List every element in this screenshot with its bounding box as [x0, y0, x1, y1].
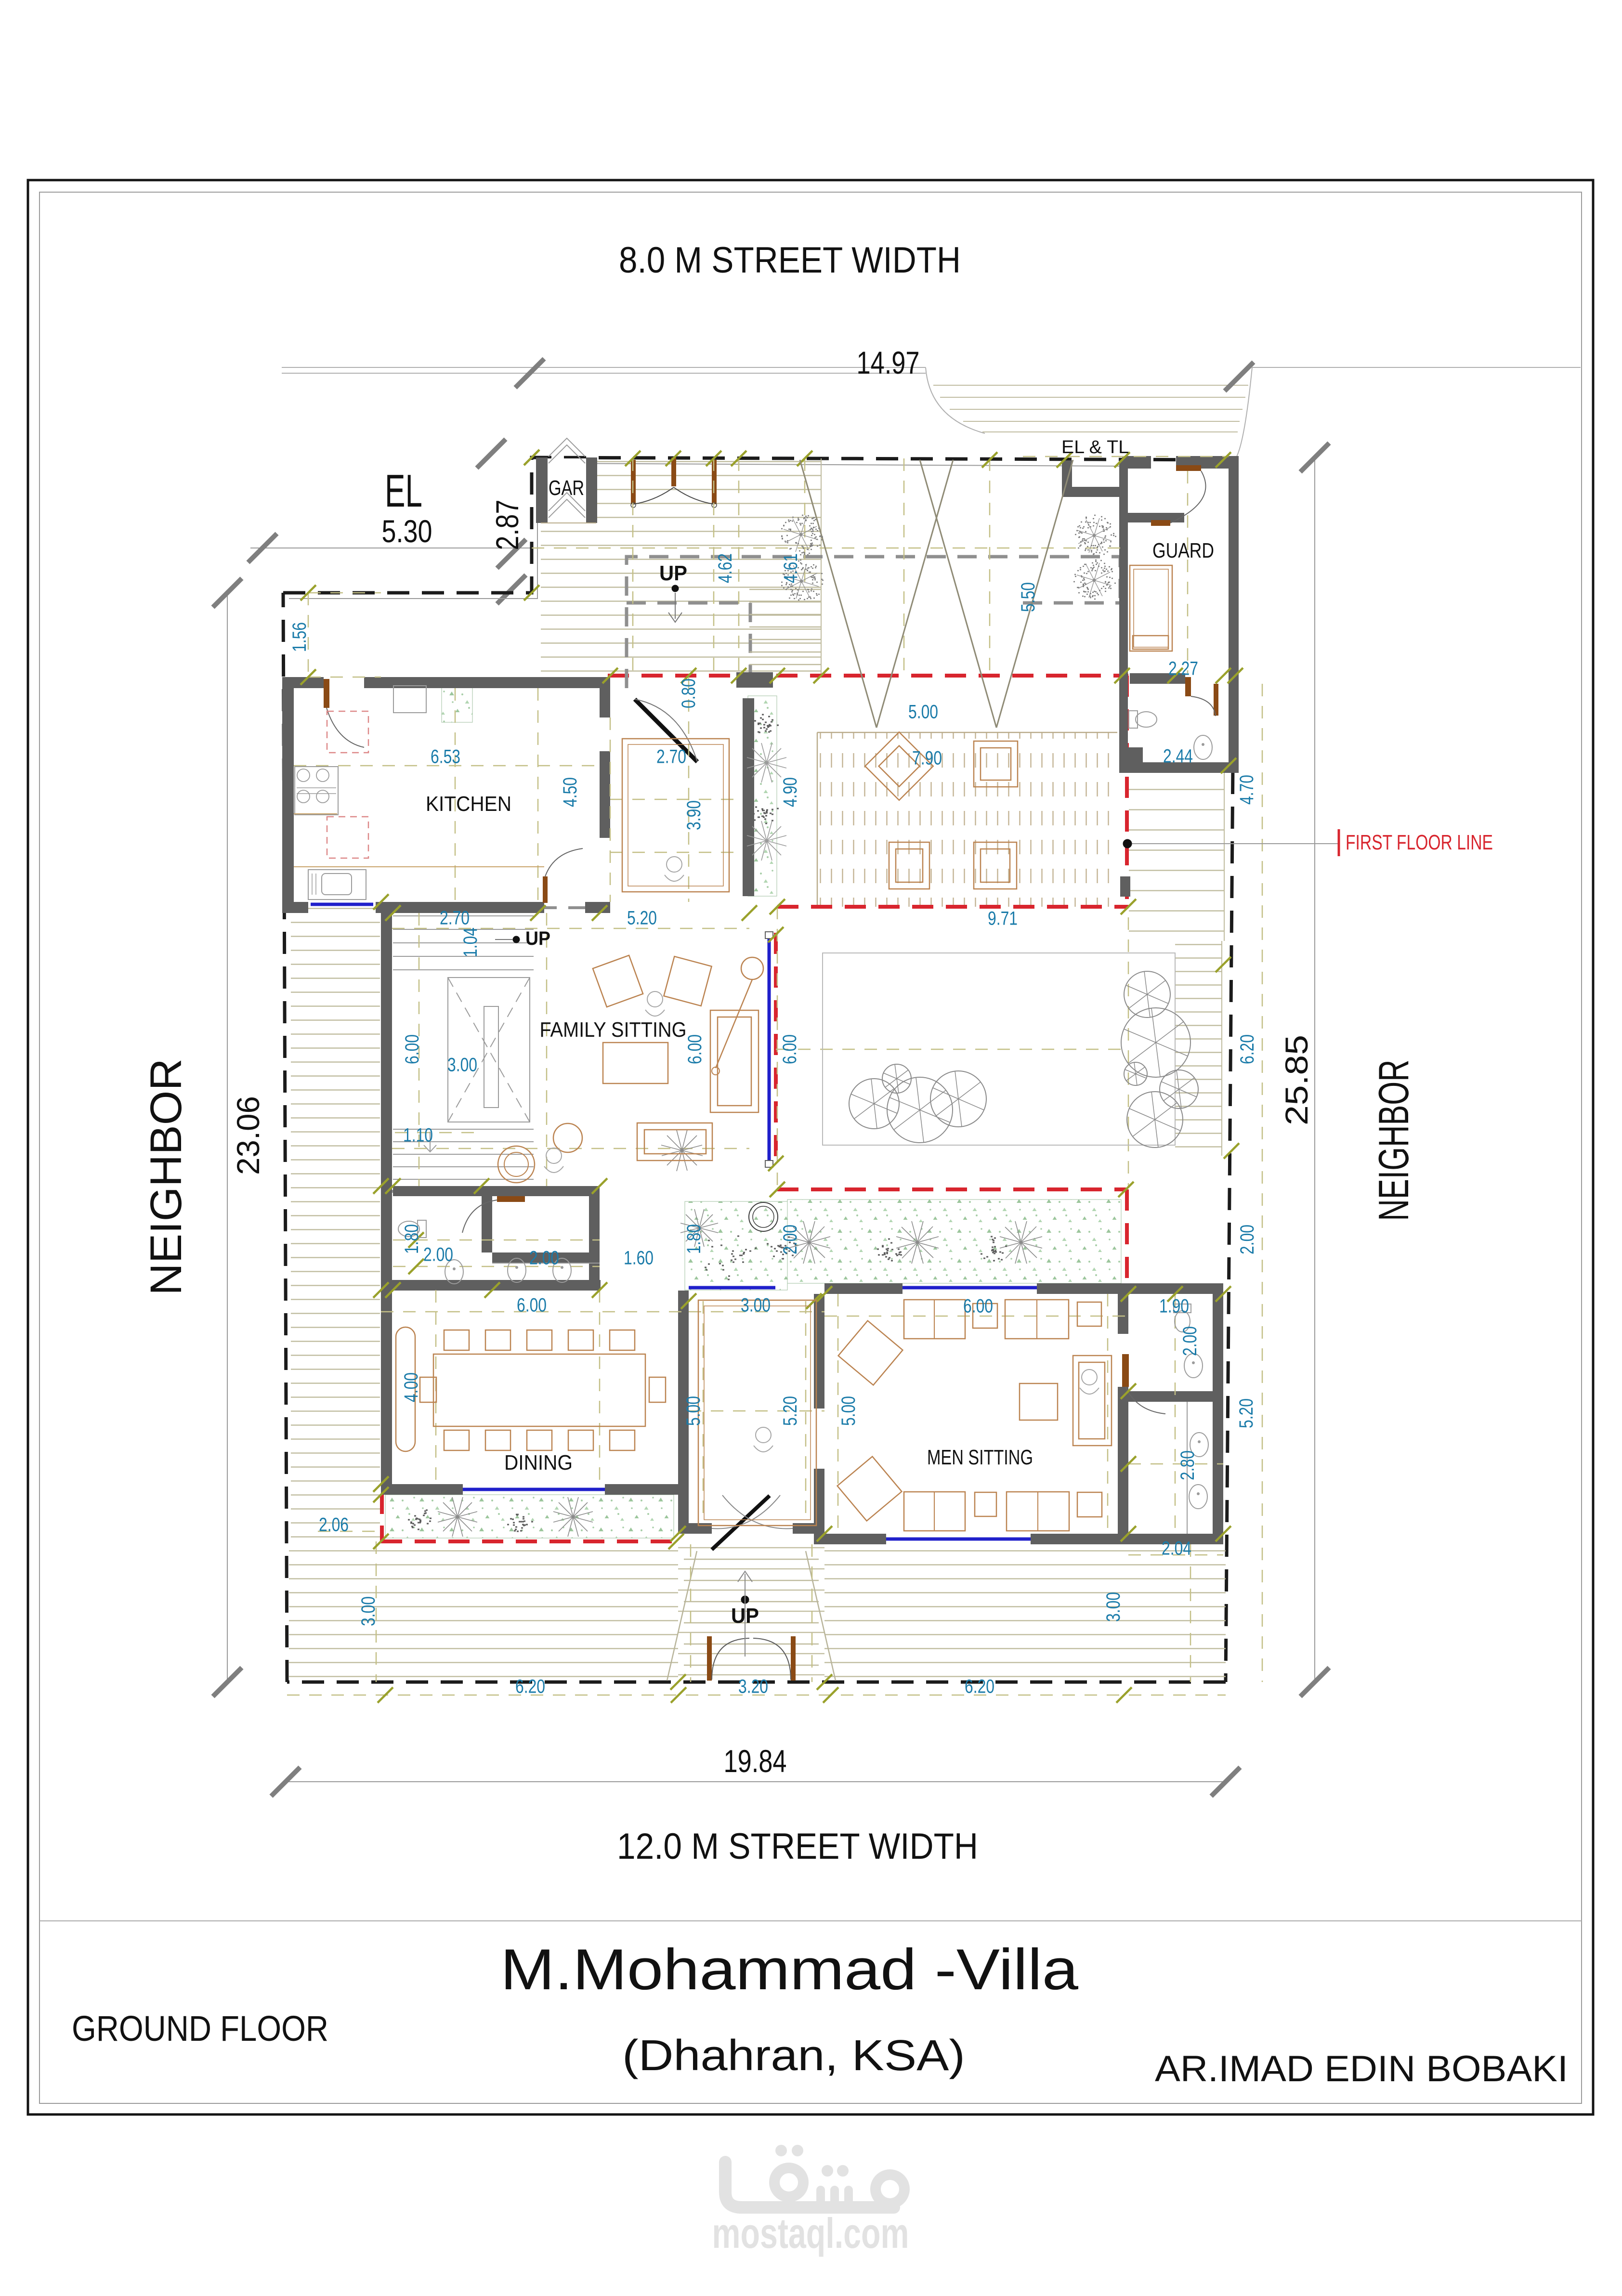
svg-text:1.04: 1.04 [460, 927, 481, 957]
svg-text:1.10: 1.10 [403, 1124, 433, 1146]
svg-text:3.00: 3.00 [741, 1294, 771, 1316]
svg-text:AR.IMAD EDIN BOBAKI: AR.IMAD EDIN BOBAKI [1155, 2048, 1568, 2089]
svg-text:KITCHEN: KITCHEN [426, 792, 511, 816]
svg-text:1.60: 1.60 [624, 1247, 654, 1268]
svg-text:GUARD: GUARD [1152, 539, 1214, 562]
svg-text:DINING: DINING [504, 1451, 573, 1474]
svg-text:5.50: 5.50 [1018, 582, 1039, 612]
svg-text:UP: UP [659, 561, 687, 585]
svg-text:4.00: 4.00 [401, 1372, 422, 1402]
svg-text:4.50: 4.50 [560, 777, 581, 807]
svg-text:5.00: 5.00 [683, 1396, 704, 1426]
svg-text:6.20: 6.20 [515, 1676, 545, 1697]
svg-text:GAR: GAR [549, 476, 584, 500]
svg-text:6.00: 6.00 [963, 1295, 993, 1317]
svg-text:2.00: 2.00 [1237, 1225, 1258, 1254]
svg-text:6.20: 6.20 [1237, 1034, 1258, 1064]
svg-text:2.00: 2.00 [780, 1225, 801, 1254]
svg-text:2.87: 2.87 [489, 500, 525, 550]
svg-text:5.00: 5.00 [838, 1396, 859, 1426]
svg-text:NEIGHBOR: NEIGHBOR [1370, 1060, 1417, 1221]
svg-text:3.00: 3.00 [358, 1596, 379, 1626]
svg-text:2.44: 2.44 [1163, 745, 1193, 767]
svg-text:4.70: 4.70 [1236, 775, 1257, 805]
svg-text:MEN SITTING: MEN SITTING [927, 1446, 1033, 1469]
svg-text:19.84: 19.84 [724, 1743, 787, 1779]
svg-text:5.20: 5.20 [627, 907, 657, 928]
svg-text:4.62: 4.62 [715, 553, 736, 583]
svg-text:8.0 M STREET WIDTH: 8.0 M STREET WIDTH [619, 240, 961, 281]
svg-text:6.00: 6.00 [517, 1294, 547, 1316]
svg-text:6.00: 6.00 [402, 1034, 423, 1064]
svg-text:2.00: 2.00 [529, 1247, 559, 1268]
svg-text:25.85: 25.85 [1279, 1035, 1314, 1125]
svg-text:6.00: 6.00 [684, 1034, 706, 1064]
svg-text:12.0 M STREET WIDTH: 12.0 M STREET WIDTH [617, 1826, 978, 1867]
svg-text:3.00: 3.00 [1103, 1592, 1124, 1622]
svg-text:3.00: 3.00 [447, 1054, 477, 1075]
svg-text:2.06: 2.06 [319, 1514, 349, 1535]
svg-text:5.30: 5.30 [382, 513, 432, 549]
svg-text:GROUND FLOOR: GROUND FLOOR [72, 2009, 328, 2048]
svg-text:4.61: 4.61 [780, 553, 801, 583]
svg-text:9.71: 9.71 [988, 908, 1018, 929]
svg-text:5.20: 5.20 [780, 1396, 801, 1426]
svg-text:5.00: 5.00 [908, 701, 938, 722]
svg-text:2.70: 2.70 [656, 746, 686, 767]
svg-text:(Dhahran, KSA): (Dhahran, KSA) [622, 2032, 965, 2080]
svg-text:NEIGHBOR: NEIGHBOR [142, 1058, 191, 1295]
svg-text:EL: EL [385, 465, 422, 517]
svg-text:23.06: 23.06 [230, 1096, 266, 1175]
svg-text:FIRST FLOOR LINE: FIRST FLOOR LINE [1346, 831, 1493, 854]
svg-text:EL & TL: EL & TL [1061, 437, 1129, 457]
svg-text:6.00: 6.00 [779, 1034, 800, 1064]
svg-text:4.90: 4.90 [780, 777, 801, 807]
svg-text:14.97: 14.97 [857, 345, 920, 380]
svg-text:2.80: 2.80 [1177, 1450, 1198, 1480]
svg-text:7.90: 7.90 [912, 747, 942, 769]
svg-text:0.80: 0.80 [678, 678, 699, 708]
svg-text:2.00: 2.00 [1179, 1326, 1201, 1356]
svg-text:3.90: 3.90 [683, 800, 705, 830]
svg-text:2.27: 2.27 [1168, 658, 1198, 679]
svg-text:2.04: 2.04 [1162, 1538, 1191, 1559]
svg-text:FAMILY SITTING: FAMILY SITTING [540, 1018, 687, 1042]
svg-text:UP: UP [525, 928, 550, 949]
svg-text:2.00: 2.00 [423, 1244, 453, 1265]
svg-text:3.20: 3.20 [738, 1676, 768, 1697]
svg-text:2.70: 2.70 [440, 907, 470, 928]
svg-text:1.80: 1.80 [401, 1224, 422, 1254]
svg-text:6.53: 6.53 [431, 746, 460, 767]
svg-text:mostaql.com: mostaql.com [712, 2209, 909, 2257]
svg-text:1.90: 1.90 [1159, 1295, 1189, 1317]
svg-text:5.20: 5.20 [1236, 1398, 1257, 1428]
svg-text:6.20: 6.20 [965, 1676, 994, 1697]
svg-text:M.Mohammad -Villa: M.Mohammad -Villa [500, 1937, 1078, 2002]
svg-text:1.56: 1.56 [289, 622, 310, 652]
svg-text:1.80: 1.80 [683, 1224, 705, 1254]
